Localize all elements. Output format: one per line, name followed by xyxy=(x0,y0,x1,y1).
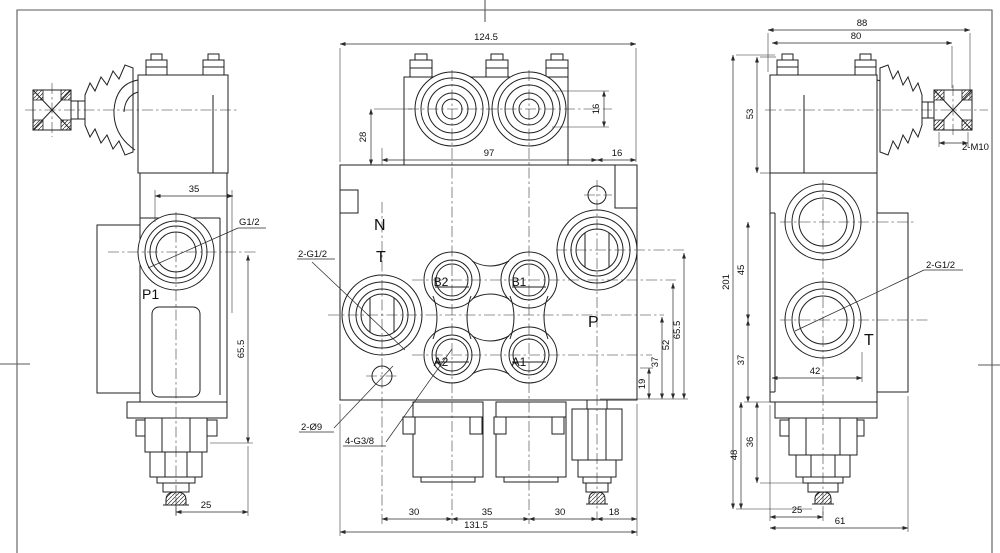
callout-2-m10: 2-M10 xyxy=(962,142,989,153)
dim-30-left: 30 xyxy=(409,507,420,518)
middle-valve-body xyxy=(340,165,637,400)
dim-88: 88 xyxy=(857,18,868,29)
dim-80: 80 xyxy=(851,31,862,42)
left-valve-body xyxy=(97,173,227,402)
right-relief-valve xyxy=(775,402,877,504)
view-front: 124.5 28 16 97 16 19 37 52 65.5 30 xyxy=(297,32,688,536)
valve-technical-drawing: 35 G1/2 P1 65.5 25 xyxy=(0,0,1000,553)
dim-131-5: 131.5 xyxy=(464,520,488,531)
dim-16-top: 16 xyxy=(591,104,602,115)
dim-25: 25 xyxy=(201,500,212,511)
callout-2-g12-right: 2-G1/2 xyxy=(926,260,955,271)
dim-25-right: 25 xyxy=(792,505,803,516)
dim-37-right: 37 xyxy=(736,355,747,366)
callout-4-g38: 4-G3/8 xyxy=(345,436,374,447)
dim-124-5: 124.5 xyxy=(474,32,498,43)
left-relief-valve xyxy=(127,402,227,505)
label-t-right: T xyxy=(864,332,874,349)
label-n: N xyxy=(374,217,386,234)
dim-35-mid: 35 xyxy=(482,507,493,518)
dim-42: 42 xyxy=(810,366,821,377)
dim-36: 36 xyxy=(745,437,756,448)
callout-2-g12: 2-G1/2 xyxy=(298,249,327,260)
callout-2-d9: 2-Ø9 xyxy=(301,422,322,433)
dim-53: 53 xyxy=(745,109,756,120)
label-p1: P1 xyxy=(142,286,159,302)
drawing-page: 35 G1/2 P1 65.5 25 xyxy=(0,0,1000,553)
label-b1: B1 xyxy=(512,275,527,289)
dim-65-5-mid: 65.5 xyxy=(672,321,683,340)
dim-61: 61 xyxy=(835,516,846,527)
dim-16-right: 16 xyxy=(612,148,623,159)
callout-g12: G1/2 xyxy=(239,217,260,228)
dim-48: 48 xyxy=(729,450,740,461)
dim-65-5: 65.5 xyxy=(236,340,247,359)
dim-28: 28 xyxy=(358,132,369,143)
dim-18: 18 xyxy=(609,507,620,518)
dim-97: 97 xyxy=(484,148,495,159)
label-t: T xyxy=(376,249,386,266)
view-left-side: 35 G1/2 P1 65.5 25 xyxy=(25,54,266,516)
view-right-side: 88 80 53 201 45 37 42 48 36 xyxy=(721,18,989,532)
dim-30-right: 30 xyxy=(555,507,566,518)
middle-spool-covers xyxy=(403,402,566,482)
dim-201: 201 xyxy=(721,274,732,290)
label-p: P xyxy=(588,314,599,331)
dim-35: 35 xyxy=(189,184,200,195)
dim-19: 19 xyxy=(637,379,648,390)
dim-45: 45 xyxy=(736,265,747,276)
label-a1: A1 xyxy=(512,355,527,369)
dim-37: 37 xyxy=(650,357,661,368)
dim-52: 52 xyxy=(661,340,672,351)
label-b2: B2 xyxy=(434,275,449,289)
